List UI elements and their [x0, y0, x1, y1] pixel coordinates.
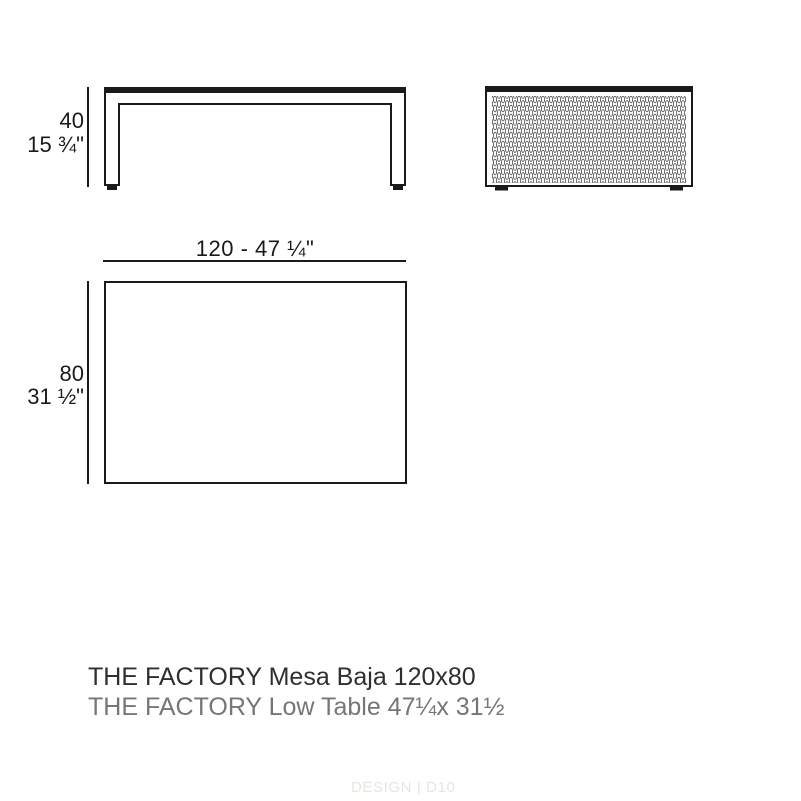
design-watermark: DESIGN | D10 — [351, 779, 455, 796]
height-dimension-line — [87, 87, 89, 187]
front-right-foot — [393, 186, 403, 190]
front-left-leg-inner-line — [118, 103, 120, 186]
height-value-cm: 40 — [12, 109, 84, 133]
width-dimension-label: 120 - 47 ¼" — [104, 236, 406, 262]
front-elevation-view — [104, 87, 406, 190]
depth-dimension-line — [87, 281, 89, 484]
height-dimension-label: 40 15 ¾" — [12, 109, 84, 157]
side-left-foot — [495, 186, 508, 191]
side-tabletop-bar — [485, 86, 693, 92]
front-tabletop-bar — [104, 87, 406, 93]
depth-value-cm: 80 — [8, 362, 84, 385]
width-dimension-line — [103, 260, 406, 262]
front-right-leg-outer-line — [404, 87, 406, 186]
depth-value-inches: 31 ½" — [8, 385, 84, 408]
side-elevation-view — [485, 86, 693, 192]
plan-view-outline — [104, 281, 407, 484]
front-left-foot — [107, 186, 117, 190]
product-title-primary: THE FACTORY Mesa Baja 120x80 — [88, 663, 476, 692]
height-value-inches: 15 ¾" — [12, 133, 84, 157]
technical-drawing-sheet: 40 15 ¾" 120 - 47 ¼" 80 31 ½" — [0, 0, 801, 801]
front-tabletop-underside-line — [118, 103, 392, 105]
front-left-leg-outer-line — [104, 87, 106, 186]
side-right-foot — [670, 186, 683, 191]
side-view-drawing — [485, 86, 693, 192]
perforated-mesh-pattern — [492, 96, 686, 183]
depth-dimension-label: 80 31 ½" — [8, 362, 84, 408]
product-title-secondary: THE FACTORY Low Table 47¼x 31½ — [88, 693, 504, 722]
front-right-leg-inner-line — [390, 103, 392, 186]
